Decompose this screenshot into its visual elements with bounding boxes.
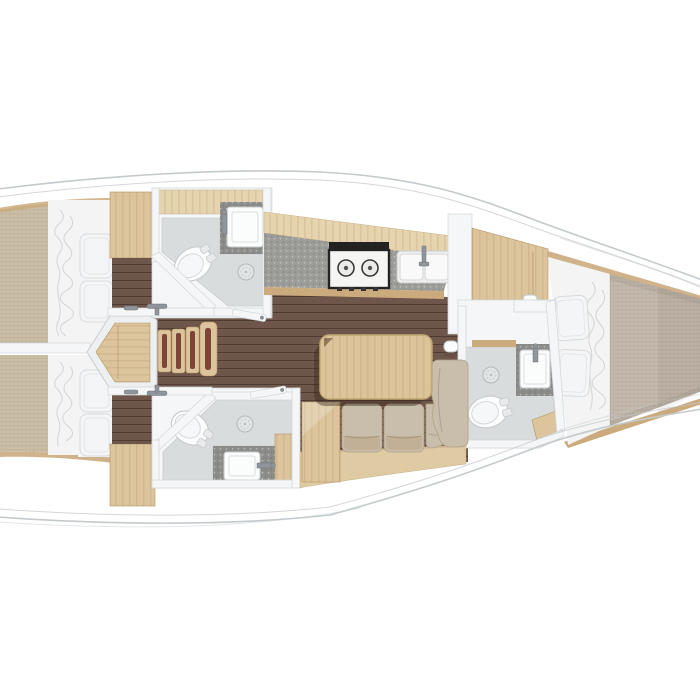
burner-center bbox=[344, 266, 348, 270]
faucet-knob bbox=[271, 463, 276, 468]
sofa-seat bbox=[384, 404, 424, 452]
door-threshold bbox=[472, 340, 516, 347]
wall-segment bbox=[152, 188, 159, 262]
faucet-icon bbox=[222, 214, 227, 234]
faucet-knob bbox=[533, 344, 538, 349]
door-handle bbox=[124, 306, 138, 310]
step-tread-stripe bbox=[162, 334, 167, 368]
stove-knob bbox=[337, 287, 342, 291]
wall-segment bbox=[152, 480, 300, 488]
faucet-icon bbox=[422, 246, 426, 264]
step-tread-stripe bbox=[176, 333, 181, 369]
door-handle-stem bbox=[155, 385, 159, 392]
door-handle bbox=[260, 316, 264, 320]
forward-head bbox=[458, 300, 565, 448]
door-handle bbox=[280, 388, 284, 392]
yacht-floor-plan bbox=[0, 0, 700, 700]
texture bbox=[112, 258, 158, 310]
faucet-icon bbox=[257, 463, 272, 468]
sink-basin bbox=[400, 254, 423, 280]
faucet-base bbox=[419, 262, 429, 266]
floor-plan-canvas bbox=[0, 0, 700, 700]
shower-drain bbox=[237, 416, 253, 432]
faucet-knob bbox=[222, 210, 227, 215]
stove-knob bbox=[361, 287, 366, 291]
shower-drain bbox=[483, 367, 499, 383]
door-handle-stem bbox=[155, 308, 159, 315]
stove bbox=[329, 242, 389, 291]
texture bbox=[112, 392, 158, 444]
mattress-shade bbox=[658, 287, 700, 413]
wall-segment bbox=[292, 388, 300, 488]
stove-knob bbox=[373, 287, 378, 291]
step-tread-stripe bbox=[205, 328, 211, 370]
galley-sink bbox=[397, 246, 451, 283]
duvet bbox=[48, 355, 80, 455]
centerline-bulkhead bbox=[0, 343, 90, 353]
pillow bbox=[553, 295, 590, 341]
shower-drain bbox=[238, 264, 254, 280]
wall-segment bbox=[108, 308, 214, 316]
pole-shadow bbox=[444, 353, 458, 358]
stove-knob bbox=[349, 287, 354, 291]
texture bbox=[110, 192, 155, 258]
texture bbox=[320, 335, 432, 399]
burner-center bbox=[368, 266, 372, 270]
sofa-seat bbox=[342, 404, 382, 452]
texture bbox=[110, 444, 155, 506]
dining-table bbox=[320, 335, 432, 399]
sink-basin bbox=[425, 254, 448, 280]
step-tread-stripe bbox=[190, 331, 195, 369]
faucet-icon bbox=[533, 348, 538, 362]
day-head bbox=[151, 386, 300, 488]
aft-head bbox=[151, 188, 272, 322]
door-handle bbox=[124, 390, 138, 394]
grab-pole bbox=[444, 341, 458, 352]
